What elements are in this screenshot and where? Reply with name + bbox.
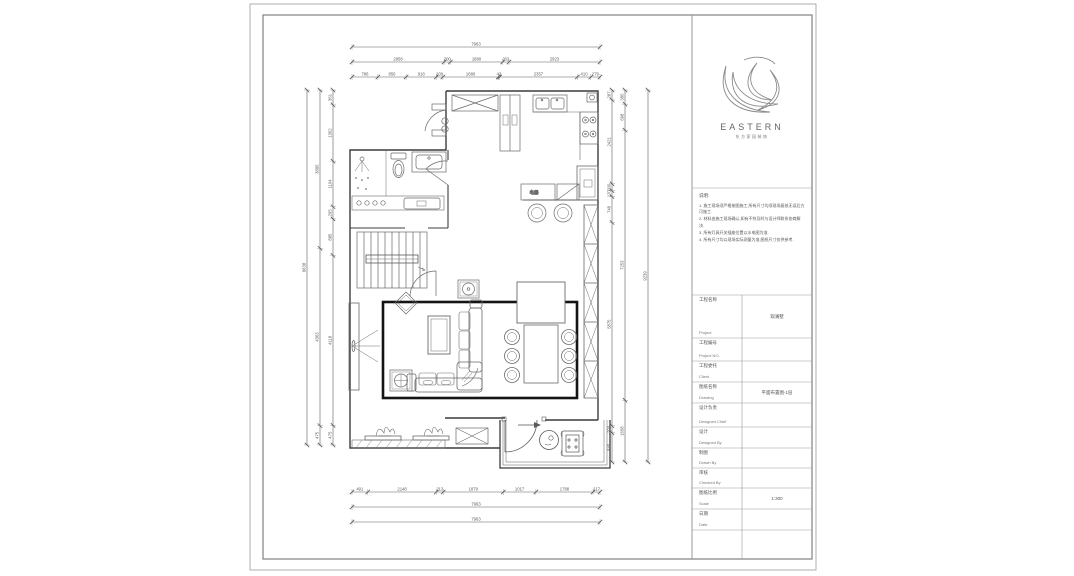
titleblock-label-cn: 制图: [699, 450, 708, 456]
titleblock-label-en: Project: [699, 330, 711, 335]
titleblock-value: 平面布置图-1层: [742, 390, 812, 396]
titleblock-label-en: Designed By: [699, 440, 722, 445]
svg-text:491: 491: [356, 487, 364, 492]
svg-text:698: 698: [620, 113, 625, 121]
notes-block: 说明: 1. 施工现场须严格按图施工,所有尺寸均须现场复核无误后方可施工.2. …: [699, 193, 805, 244]
svg-text:2357: 2357: [534, 72, 544, 77]
titleblock-label-en: Date: [699, 522, 707, 527]
titleblock-label-en: Designed Chief: [699, 419, 726, 424]
logo-brand-text: EASTERN: [692, 122, 812, 132]
svg-text:3895: 3895: [315, 164, 320, 174]
meter-icon: [442, 118, 448, 124]
shoe-cabinet-icon: [456, 428, 488, 444]
svg-text:1104: 1104: [328, 179, 333, 189]
notes-title: 说明:: [699, 193, 805, 200]
svg-text:4363: 4363: [315, 332, 320, 342]
entry-porch: [500, 420, 610, 468]
svg-text:475: 475: [315, 431, 320, 439]
svg-text:43: 43: [497, 72, 502, 77]
drawing-sheet: 电器: [0, 0, 1074, 576]
porch-chair-icon: [561, 431, 584, 456]
titleblock-label-en: Checked By: [699, 480, 721, 485]
storage-cabinet-icon: [584, 205, 598, 398]
titleblock-label-cn: 工程编号: [699, 340, 717, 346]
titleblock-label-cn: 图纸比例: [699, 490, 717, 496]
island-label: 电器: [530, 189, 539, 196]
svg-text:287: 287: [607, 91, 612, 99]
svg-text:7963: 7963: [471, 517, 481, 522]
titleblock-label-cn: 审核: [699, 470, 708, 476]
svg-text:2923: 2923: [550, 57, 560, 62]
svg-text:7963: 7963: [471, 502, 481, 507]
kitchen-island: 电器: [521, 184, 579, 200]
note-item: 4. 所有尺寸均以现场实际测量为准,图纸尺寸仅供参考.: [699, 237, 805, 243]
sofa-icon: [407, 300, 482, 392]
svg-text:1362: 1362: [328, 128, 333, 138]
staircase: [357, 232, 436, 296]
titleblock-label-en: Project NO.: [699, 353, 720, 358]
living-room: [349, 280, 482, 392]
titleblock-label-cn: 工程委托: [699, 363, 717, 369]
eastern-logo-icon: [723, 57, 779, 112]
sofa-pillow: [462, 371, 472, 382]
svg-text:786: 786: [361, 72, 369, 77]
titleblock-label-cn: 工程名称: [699, 297, 717, 303]
note-item: 2. 材料由施工现场确认,如有不符及时与设计师联系协商解决.: [699, 216, 805, 228]
svg-text:217: 217: [593, 487, 601, 492]
svg-text:295: 295: [328, 209, 333, 217]
note-item: 3. 所有灯具开关插座位置以水电图为准.: [699, 230, 805, 236]
svg-text:4118: 4118: [328, 335, 333, 345]
svg-text:9638: 9638: [302, 262, 307, 272]
kitchen-sink-icon: [533, 95, 567, 112]
svg-text:200: 200: [436, 72, 444, 77]
plant-icon: [376, 427, 395, 436]
hall-closet: [452, 95, 520, 151]
titleblock-label-en: Client: [699, 374, 709, 379]
plant-icon: [424, 427, 443, 436]
meter-icon: [442, 126, 448, 132]
logo-subtitle-text: 东方家园装饰: [692, 134, 812, 140]
titleblock-label-cn: 设计负责: [699, 405, 717, 411]
svg-text:2148: 2148: [397, 487, 407, 492]
titleblock-label-en: Drawn By: [699, 460, 716, 465]
svg-text:361: 361: [328, 93, 333, 101]
svg-text:2421: 2421: [607, 137, 612, 147]
dining-table-icon: [524, 325, 558, 383]
entry-arrow-icon: [518, 422, 541, 428]
svg-text:856: 856: [388, 72, 396, 77]
svg-text:9239: 9239: [643, 271, 648, 281]
titleblock-label-en: Scale: [699, 501, 709, 506]
walls: [350, 91, 598, 448]
svg-text:410: 410: [581, 72, 589, 77]
coffee-table-icon: [428, 316, 450, 354]
svg-text:1788: 1788: [560, 487, 570, 492]
svg-text:7963: 7963: [471, 42, 481, 47]
titleblock-value: 1:300: [742, 496, 812, 501]
svg-text:2958: 2958: [393, 57, 403, 62]
svg-text:202: 202: [502, 57, 510, 62]
svg-text:1680: 1680: [466, 72, 476, 77]
svg-text:845: 845: [607, 443, 612, 451]
note-item: 1. 施工现场须严格按图施工,所有尺寸均须现场复核无误后方可施工.: [699, 203, 805, 215]
fridge-icon: [577, 166, 598, 200]
titleblock-label-cn: 日期: [699, 511, 708, 517]
svg-text:1879: 1879: [469, 487, 479, 492]
stove-icon: [580, 112, 598, 144]
svg-text:7253: 7253: [620, 260, 625, 270]
stair-door-icon: [410, 271, 436, 296]
svg-text:200: 200: [444, 57, 452, 62]
bathroom: [352, 150, 448, 210]
bathroom-vanity-strip: [352, 196, 444, 210]
floorplan-svg: 电器: [0, 0, 1074, 576]
svg-text:380: 380: [620, 93, 625, 101]
titleblock-label-cn: 图纸名称: [699, 384, 717, 390]
svg-text:200: 200: [607, 183, 612, 191]
titleblock-label-en: Drawing: [699, 395, 714, 400]
svg-text:1017: 1017: [515, 487, 525, 492]
svg-text:279: 279: [592, 72, 600, 77]
svg-text:748: 748: [607, 205, 612, 213]
washer-icon: [404, 198, 440, 209]
shower-icon: [355, 157, 369, 190]
svg-text:918: 918: [418, 72, 426, 77]
svg-text:475: 475: [328, 431, 333, 439]
hall-door-icon: [425, 104, 448, 136]
svg-text:200: 200: [607, 425, 612, 433]
window-bench: [352, 427, 488, 448]
titleblock-value: 观澜墅: [742, 314, 812, 320]
plant-icon: [390, 370, 412, 391]
entry-door-icon: [502, 417, 546, 452]
bar-stool-icon: [528, 204, 572, 222]
bathroom-door-icon: [426, 161, 448, 185]
kitchen: 电器: [521, 93, 598, 222]
titleblock-label-cn: 设计: [699, 429, 708, 435]
toilet-icon: [391, 153, 406, 178]
svg-text:1658: 1658: [620, 426, 625, 436]
dining-area: [505, 282, 577, 383]
stair-direction-arrow: [418, 267, 425, 271]
porch-table-icon: [540, 431, 559, 450]
sideboard: [517, 282, 565, 323]
svg-text:213: 213: [436, 487, 444, 492]
tv-cabinet-icon: [349, 303, 380, 390]
svg-text:1680: 1680: [472, 57, 482, 62]
svg-text:170: 170: [607, 189, 612, 197]
svg-text:885: 885: [328, 233, 333, 241]
bathroom-sink-icon: [412, 152, 446, 172]
pantry-cabinet-icon: [500, 95, 520, 151]
plant-icon: [458, 280, 479, 298]
corner-column-icon: [587, 93, 597, 102]
svg-text:5875: 5875: [607, 319, 612, 329]
